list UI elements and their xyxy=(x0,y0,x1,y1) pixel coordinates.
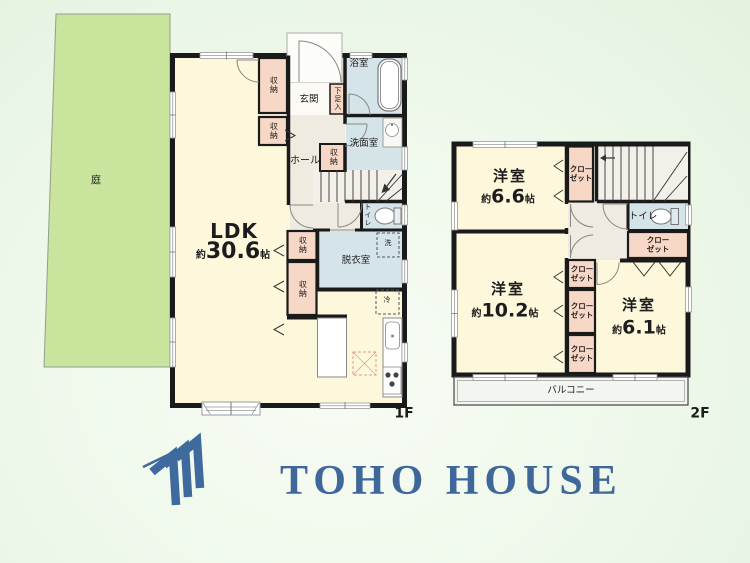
toho-house-logo-icon xyxy=(140,430,250,515)
closet-mid2-label: クローゼット xyxy=(571,302,594,321)
bed2-name: 洋室 xyxy=(491,281,525,298)
storage-top2-label: 収納 xyxy=(269,122,278,140)
hall-storage-label: 収納 xyxy=(329,148,338,166)
toilet-fixture-1f xyxy=(375,208,401,224)
bay-window xyxy=(202,402,260,415)
genkan-label: 玄関 xyxy=(299,95,318,105)
bed1-size: 約6.6帖 xyxy=(481,187,535,208)
floor1-label: 1F xyxy=(394,406,413,421)
storage-mid1-label: 収納 xyxy=(298,236,307,254)
f2-hall xyxy=(568,202,628,260)
balcony-label: バルコニー xyxy=(547,386,594,396)
kitchen-island xyxy=(318,318,347,377)
garden-area xyxy=(36,6,176,372)
toilet2-label: トイレ xyxy=(629,212,658,222)
closet-mid3-label: クローゼット xyxy=(571,345,594,364)
floor-plan-page: TOHO HOUSE 庭 LDK 約30.6帖 玄関 下足入 浴室 洗面室 ホー… xyxy=(0,0,750,563)
stove xyxy=(383,367,401,394)
washroom-sink xyxy=(383,118,402,147)
toho-house-logo-text: TOHO HOUSE xyxy=(280,457,623,505)
bed2-size: 約10.2帖 xyxy=(472,301,539,322)
storage-mid2-label: 収納 xyxy=(298,280,307,298)
garden-shape xyxy=(44,14,170,367)
bed3-size: 約6.1帖 xyxy=(612,318,666,339)
toilet1-label: トイレ xyxy=(363,203,371,227)
fridge-label: 冷 xyxy=(384,297,391,305)
garden-label: 庭 xyxy=(91,176,101,187)
floor1-plan xyxy=(170,31,410,421)
washer-label: 洗 xyxy=(385,240,392,248)
hall-label: ホール xyxy=(290,156,320,167)
entrance-porch xyxy=(287,33,342,83)
bed3-name: 洋室 xyxy=(622,297,656,314)
bath-label: 浴室 xyxy=(349,59,368,69)
stairs-floor xyxy=(313,170,402,203)
closet-mid1-label: クローゼット xyxy=(571,265,594,284)
bathtub xyxy=(378,59,401,111)
closet-right-label: クローゼット xyxy=(647,236,670,255)
bed1-name: 洋室 xyxy=(493,168,527,185)
dressing-label: 脱衣室 xyxy=(342,256,371,266)
ldk-size: 約30.6帖 xyxy=(196,240,270,264)
stairs-floor-2f xyxy=(597,147,688,202)
washroom-label: 洗面室 xyxy=(350,139,379,149)
floor2-label: 2F xyxy=(690,406,709,421)
shoe-box-label: 下足入 xyxy=(333,87,341,111)
closet-top-label: クローゼット xyxy=(570,165,593,184)
storage-top1-label: 収納 xyxy=(269,76,278,94)
